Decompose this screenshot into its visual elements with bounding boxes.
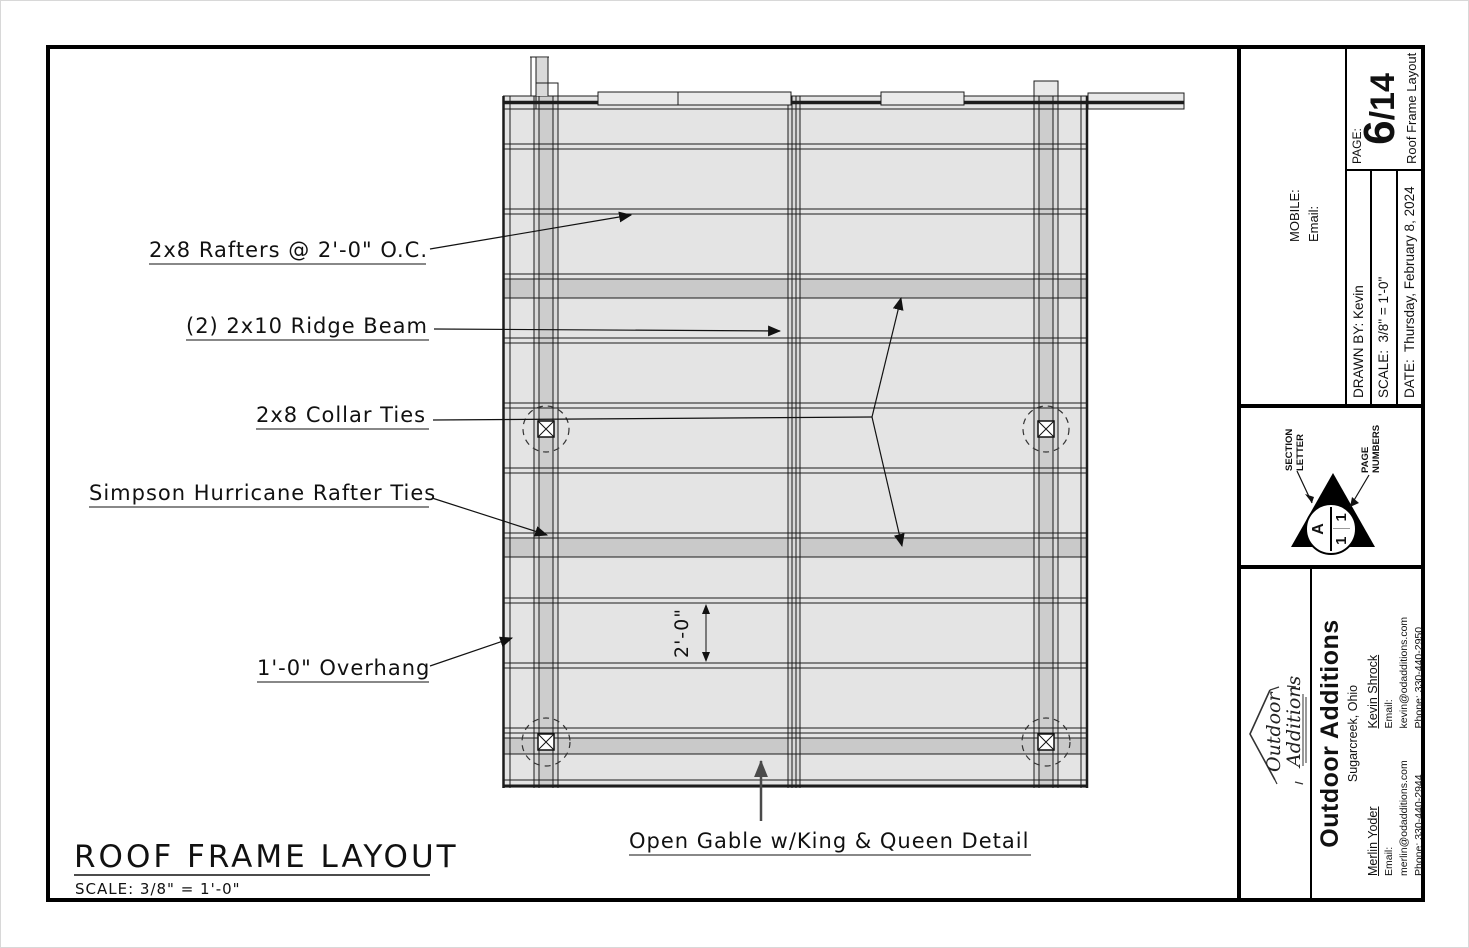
page-current: 6 (1355, 120, 1404, 144)
titleblock-meta-cell: MOBILE: Email: DRAWN BY: Kevin SCALE: 3/… (1241, 49, 1421, 404)
roof-structure (503, 57, 1184, 788)
contact-name: Kevin Shrock (1366, 585, 1380, 728)
ridge-beam-column (788, 96, 800, 788)
company-cell: Outdoor Additions Outdoor Additions Suga… (1241, 569, 1421, 898)
logo-graphic: Outdoor Additions (1243, 671, 1309, 797)
company-logo: Outdoor Additions (1241, 569, 1312, 898)
email-label: Email: (1304, 49, 1323, 242)
scale-row: SCALE: 3/8" = 1'-0" (1370, 171, 1395, 404)
drawn-by-row: DRAWN BY: Kevin (1347, 171, 1370, 404)
contact-merlin: Merlin Yoder Email: merlin@odadditions.c… (1366, 728, 1427, 876)
contact-phone: Phone: 330-440-2950 (1412, 585, 1427, 728)
contact-kevin: Kevin Shrock Email: kevin@odadditions.co… (1366, 585, 1427, 728)
section-letter-label: SECTION LETTER (1285, 415, 1306, 471)
page-box: PAGE: 6/14 Roof Frame Layout (1347, 49, 1421, 171)
blocking-segment (881, 92, 964, 105)
label-collar: 2x8 Collar Ties (256, 403, 426, 427)
section-num-left: 1 (1333, 537, 1350, 545)
drawing-title-block: ROOF FRAME LAYOUT SCALE: 3/8" = 1'-0" (74, 839, 459, 898)
page-total: /14 (1364, 73, 1402, 120)
contact-email: Email: kevin@odadditions.com (1382, 585, 1412, 728)
date-row: DATE: Thursday, February 8, 2024 (1396, 171, 1421, 404)
company-name: Outdoor Additions (1316, 569, 1345, 898)
logo-line2: Additions (1283, 676, 1305, 770)
page-background: 2x8 Rafters @ 2'-0" O.C. (2) 2x10 Ridge … (0, 0, 1469, 948)
mobile-label: MOBILE: (1285, 49, 1304, 242)
right-post-extension (1034, 81, 1058, 96)
blocking-segment (678, 92, 791, 105)
section-key-cell: A 11 SECTION LETTER PAGE NUMBERS (1241, 412, 1421, 565)
section-callout-circle: A 11 (1305, 503, 1357, 555)
titleblock-hdivider-1 (1241, 404, 1421, 408)
section-letter: A (1310, 505, 1328, 553)
label-overhang: 1'-0" Overhang (257, 656, 430, 680)
blocking-segment (598, 92, 678, 105)
overhang-leader (430, 638, 512, 666)
drawing-scale-note: SCALE: 3/8" = 1'-0" (75, 880, 241, 898)
contact-header: MOBILE: Email: (1241, 49, 1345, 404)
label-dimension: 2'-0" (671, 608, 693, 658)
company-city: Sugarcreek, Ohio (1346, 569, 1360, 898)
label-ridge: (2) 2x10 Ridge Beam (186, 314, 428, 338)
roof-plan-svg: 2x8 Rafters @ 2'-0" O.C. (2) 2x10 Ridge … (50, 49, 1237, 898)
section-circle-divider (1330, 507, 1332, 551)
page-numbers-label: PAGE NUMBERS (1361, 413, 1382, 473)
contact-name: Merlin Yoder (1366, 728, 1380, 876)
sheet-title: Roof Frame Layout (1404, 53, 1419, 164)
drawing-title: ROOF FRAME LAYOUT (74, 839, 459, 875)
section-num-right: 1 (1333, 513, 1350, 521)
contact-email: Email: merlin@odadditions.com (1382, 728, 1412, 876)
meta-rows: DRAWN BY: Kevin SCALE: 3/8" = 1'-0" DATE… (1347, 171, 1421, 404)
label-hurricane: Simpson Hurricane Rafter Ties (89, 481, 436, 505)
logo-line1: Outdoor (1263, 691, 1285, 772)
page-number: 6/14 (1355, 49, 1405, 169)
label-open-gable: Open Gable w/King & Queen Detail (629, 829, 1029, 853)
label-rafters: 2x8 Rafters @ 2'-0" O.C. (149, 238, 428, 262)
contact-phone: Phone: 330-440-2944 (1412, 728, 1427, 876)
